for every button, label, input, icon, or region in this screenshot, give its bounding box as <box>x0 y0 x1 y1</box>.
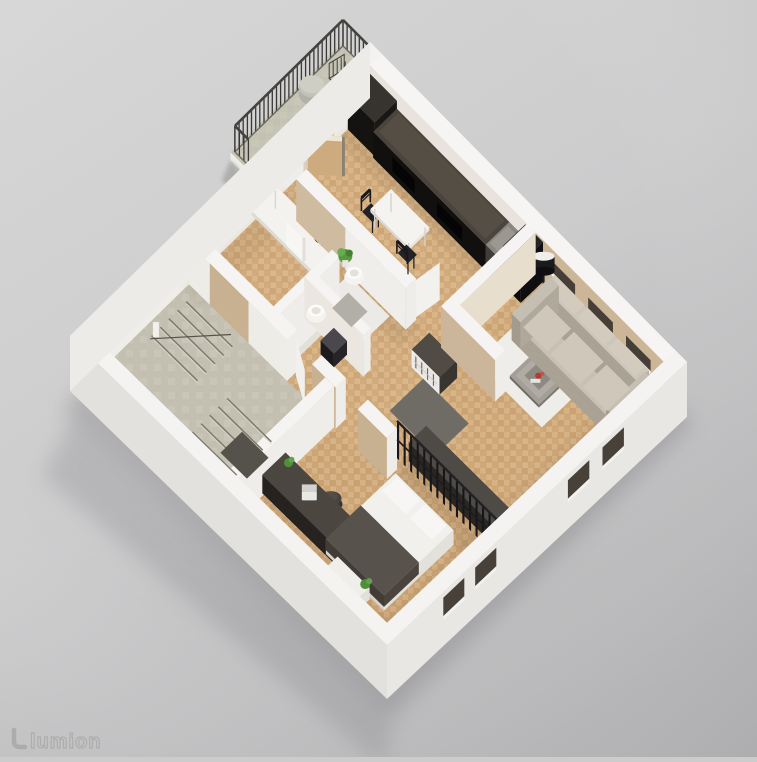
svg-text:lumion: lumion <box>30 731 102 753</box>
